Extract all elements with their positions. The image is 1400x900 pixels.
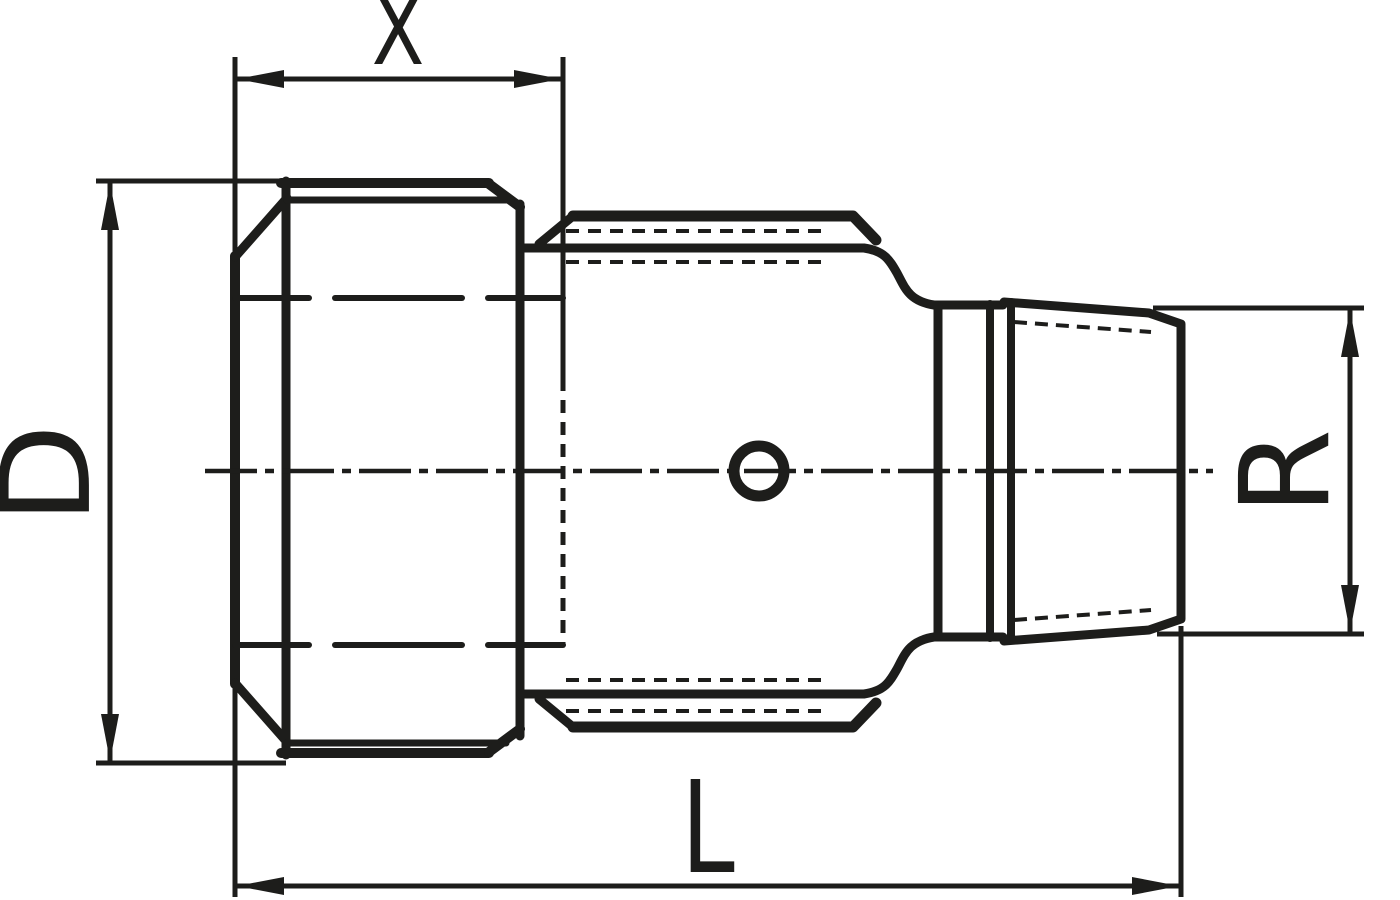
- dimension-d: [96, 181, 292, 763]
- dimension-label-x: X: [372, 0, 425, 87]
- arrowhead-down-icon: [101, 714, 119, 761]
- dimension-label-d: D: [0, 424, 118, 524]
- dimension-label-l: L: [681, 753, 734, 900]
- hex-section: [235, 181, 563, 755]
- arrowhead-up-icon: [1341, 310, 1359, 357]
- neck-curve-bottom: [521, 637, 1003, 694]
- arrowhead-right-icon: [514, 70, 561, 88]
- fitting-drawing: X D L R: [0, 0, 1400, 900]
- arrowhead-right-icon: [1132, 877, 1179, 895]
- arrowhead-left-icon: [237, 877, 284, 895]
- arrowhead-up-icon: [101, 183, 119, 230]
- part-outline: [205, 181, 1213, 755]
- arrowhead-left-icon: [237, 70, 284, 88]
- technical-drawing-page: X D L R: [0, 0, 1400, 900]
- arrowhead-down-icon: [1341, 585, 1359, 632]
- dimension-label-r: R: [1214, 429, 1358, 515]
- neck-curve-top: [521, 248, 1003, 305]
